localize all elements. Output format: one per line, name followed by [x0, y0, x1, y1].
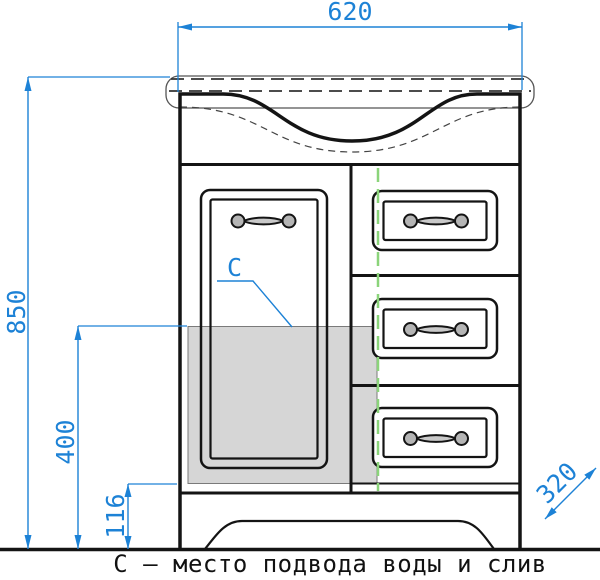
dimension-116: 116	[101, 484, 177, 549]
dimension-320: 320	[531, 457, 596, 519]
sink-rim	[166, 76, 534, 108]
dim-zone-bottom-label: 116	[101, 493, 130, 538]
vanity-cabinet-drawing: 620 850 400 116 320 С С – место подвода …	[0, 0, 600, 580]
dim-zone-top-label: 400	[51, 419, 80, 464]
sink-bowl-hidden-curve	[180, 107, 520, 152]
dim-depth-label: 320	[531, 457, 583, 509]
dim-width-label: 620	[327, 0, 372, 26]
dimension-850: 850	[2, 77, 170, 549]
door-handle-icon	[232, 215, 296, 228]
dim-height-label: 850	[2, 289, 31, 334]
water-supply-zone	[188, 327, 377, 484]
zone-marker: С	[217, 253, 292, 327]
zone-marker-label: С	[227, 253, 242, 282]
plinth-recess-profile	[205, 521, 494, 549]
caption-text: С – место подвода воды и слив	[113, 550, 547, 578]
dimension-620: 620	[178, 0, 522, 92]
zone-leader-line	[217, 281, 292, 327]
technical-drawing-page: 620 850 400 116 320 С С – место подвода …	[0, 0, 600, 580]
